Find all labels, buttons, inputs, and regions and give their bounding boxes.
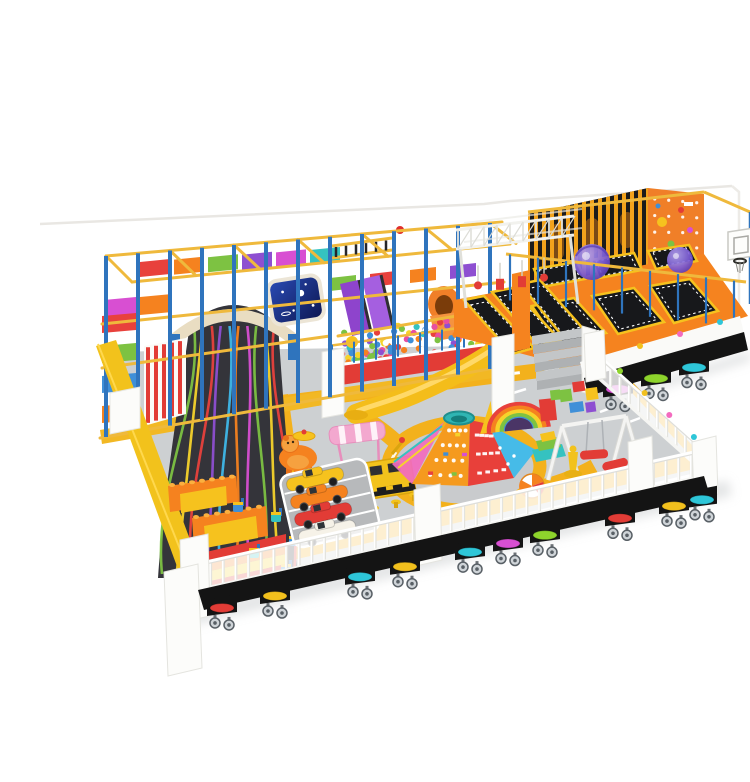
climbing-hold <box>428 471 433 474</box>
caster-stool <box>210 603 234 612</box>
fence-marker <box>691 434 697 440</box>
pit-ball <box>431 324 437 330</box>
stairs-pillar <box>492 334 514 414</box>
caster-stool <box>608 514 632 523</box>
hanging-obstacle <box>474 281 482 289</box>
hanging-obstacle <box>518 276 526 287</box>
caster-stool <box>690 495 714 504</box>
arch-post-right <box>288 334 296 360</box>
wrecking-ball <box>667 247 693 273</box>
kids-chair <box>271 514 281 522</box>
fence-end-pillar <box>164 564 202 676</box>
caster-stool <box>533 531 557 540</box>
climbing-hold <box>462 453 467 456</box>
hanging-obstacle <box>540 274 548 282</box>
pit-ball <box>367 332 373 338</box>
caster-stool <box>263 592 287 601</box>
soft-pad <box>140 259 170 277</box>
caster-stool <box>682 363 706 372</box>
deck-edge-marker <box>637 343 643 349</box>
caster-stool <box>348 572 372 581</box>
deck-edge-marker <box>677 331 683 337</box>
caster-stool <box>662 502 686 511</box>
pit-ball <box>378 349 384 355</box>
fence-pillar <box>584 330 606 382</box>
pit-ball <box>408 337 414 343</box>
caster-stool <box>496 539 520 548</box>
climbing-hold <box>455 433 460 436</box>
wrecking-ball-glare <box>673 253 679 259</box>
climbing-stripe-panel <box>144 338 186 426</box>
hanging-obstacle <box>496 279 504 290</box>
fence-marker <box>642 390 648 396</box>
pit-ball <box>435 337 441 343</box>
left-white-block <box>110 387 140 434</box>
deck-pillar <box>322 348 344 418</box>
kids-chair <box>233 504 243 512</box>
caster-stool <box>644 374 668 383</box>
scene-canvas <box>40 16 750 766</box>
climbing-hold <box>657 217 667 227</box>
fence-marker <box>666 412 672 418</box>
fence-marker <box>617 368 623 374</box>
wrecking-ball-glare <box>582 252 590 260</box>
soft-pad <box>140 294 172 315</box>
deck-edge-marker <box>717 319 723 325</box>
pit-ball <box>369 343 375 349</box>
pit-ball <box>383 340 389 346</box>
climbing-hold <box>687 227 693 233</box>
pit-ball <box>414 324 420 330</box>
caster-stool <box>458 548 482 557</box>
climbing-hold <box>452 472 457 475</box>
climbing-hold <box>656 204 661 209</box>
climbing-hold <box>678 207 684 213</box>
playground-product-photo <box>40 16 750 766</box>
climbing-hold <box>443 452 448 455</box>
pit-ball <box>401 347 407 353</box>
caster-stool <box>393 562 417 571</box>
